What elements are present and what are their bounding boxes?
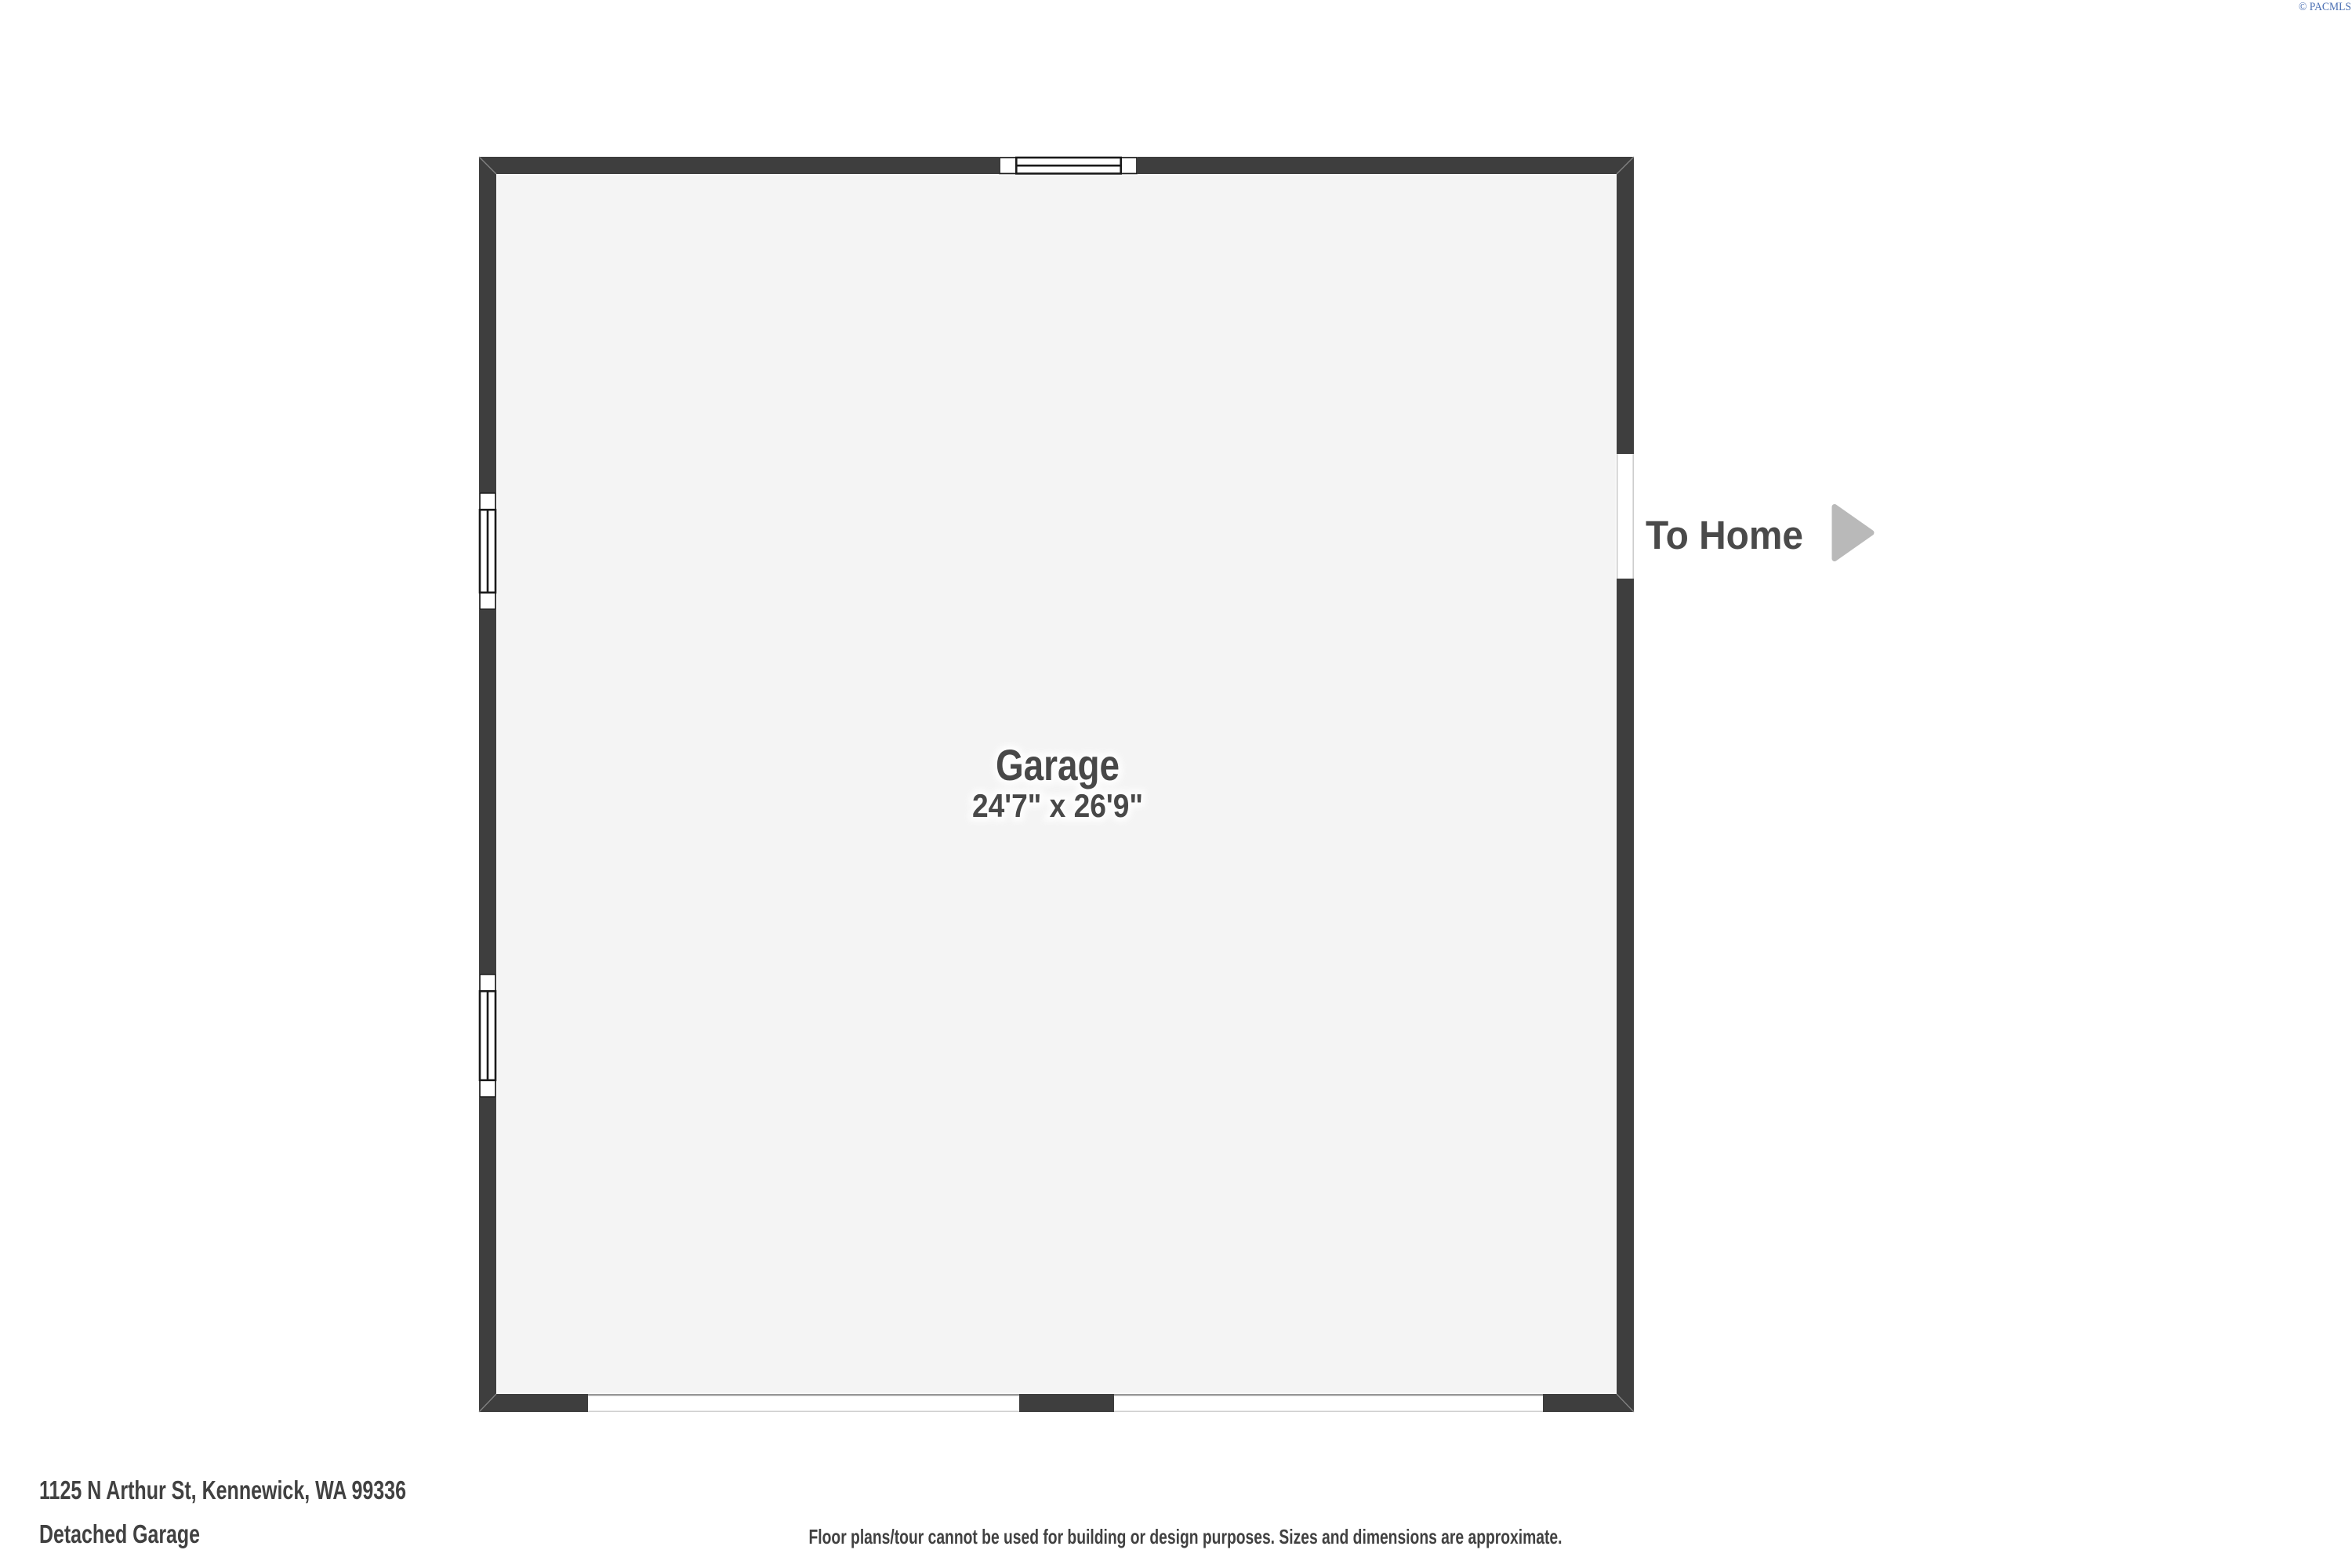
svg-text:24'7" x 26'9": 24'7" x 26'9" [972, 788, 1143, 824]
svg-text:Detached Garage: Detached Garage [39, 1520, 200, 1549]
svg-text:1125 N Arthur St, Kennewick, W: 1125 N Arthur St, Kennewick, WA 99336 [39, 1476, 406, 1505]
svg-text:To Home: To Home [1646, 512, 1803, 557]
svg-text:Garage: Garage [996, 741, 1120, 789]
svg-text:© PACMLS: © PACMLS [2299, 1, 2351, 13]
svg-text:Floor plans/tour cannot be use: Floor plans/tour cannot be used for buil… [809, 1525, 1563, 1548]
